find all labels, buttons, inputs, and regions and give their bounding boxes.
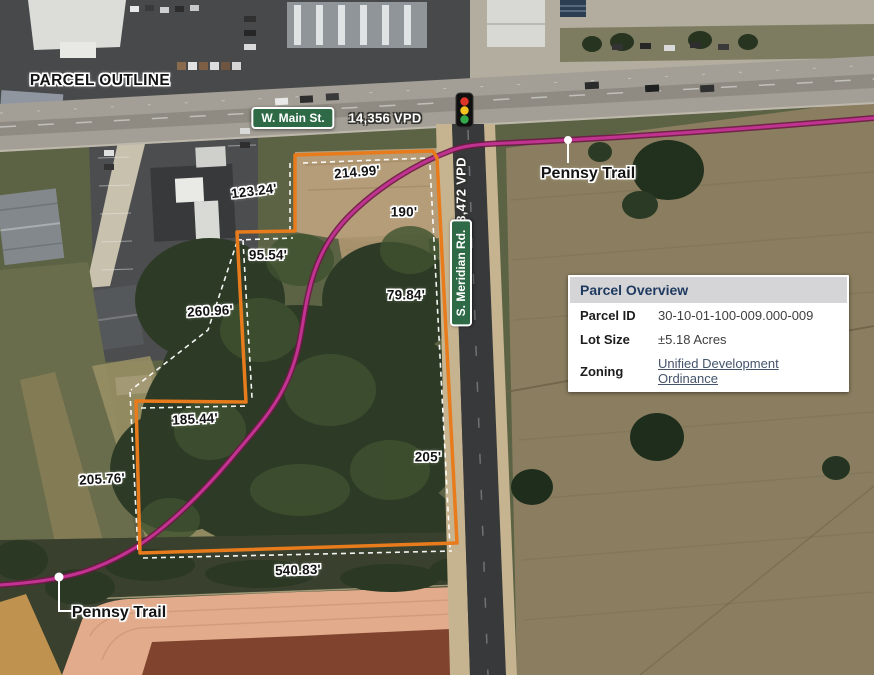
table-row: Lot Size ±5.18 Acres bbox=[570, 327, 847, 351]
lot-size-value: ±5.18 Acres bbox=[658, 332, 727, 347]
dimension-label: 185.44' bbox=[172, 410, 219, 427]
traffic-light-icon bbox=[456, 93, 473, 127]
meridian-vpd-label: 3,472 VPD bbox=[454, 157, 469, 223]
zoning-ordinance-link[interactable]: Unified Development Ordinance bbox=[658, 356, 837, 386]
zoning-label: Zoning bbox=[580, 364, 658, 379]
parcel-overview-card: Parcel Overview Parcel ID 30-10-01-100-0… bbox=[568, 275, 849, 392]
table-row: Zoning Unified Development Ordinance bbox=[570, 351, 847, 390]
dimension-label: 95.54' bbox=[249, 248, 287, 263]
table-row: Parcel ID 30-10-01-100-009.000-009 bbox=[570, 303, 847, 327]
road-badge-meridian: S. Meridian Rd. bbox=[450, 220, 472, 327]
page-title: PARCEL OUTLINE bbox=[30, 72, 170, 90]
dimension-label: 79.84' bbox=[387, 288, 425, 303]
grass-strip-northeast bbox=[560, 24, 874, 62]
parcel-id-value: 30-10-01-100-009.000-009 bbox=[658, 308, 813, 323]
dimension-label: 190' bbox=[391, 205, 418, 220]
dimension-label: 205' bbox=[415, 450, 442, 465]
pennsy-trail-label-right: Pennsy Trail bbox=[541, 165, 635, 183]
aerial-parcel-map: PARCEL OUTLINE W. Main St. 14,356 VPD 3,… bbox=[0, 0, 874, 675]
dimension-label: 260.96' bbox=[187, 302, 234, 319]
parcel-id-label: Parcel ID bbox=[580, 308, 658, 323]
lot-size-label: Lot Size bbox=[580, 332, 658, 347]
main-st-vpd-label: 14,356 VPD bbox=[348, 111, 421, 126]
trail-dot-icon bbox=[55, 573, 64, 582]
dimension-label: 205.76' bbox=[79, 470, 126, 487]
building-north-center bbox=[287, 2, 427, 48]
parcel-overview-title: Parcel Overview bbox=[570, 277, 847, 303]
dimension-label: 540.83' bbox=[275, 562, 321, 579]
pennsy-trail-label-bottom: Pennsy Trail bbox=[72, 604, 166, 622]
road-badge-main-st: W. Main St. bbox=[251, 107, 334, 129]
trail-dot-icon bbox=[564, 136, 572, 144]
